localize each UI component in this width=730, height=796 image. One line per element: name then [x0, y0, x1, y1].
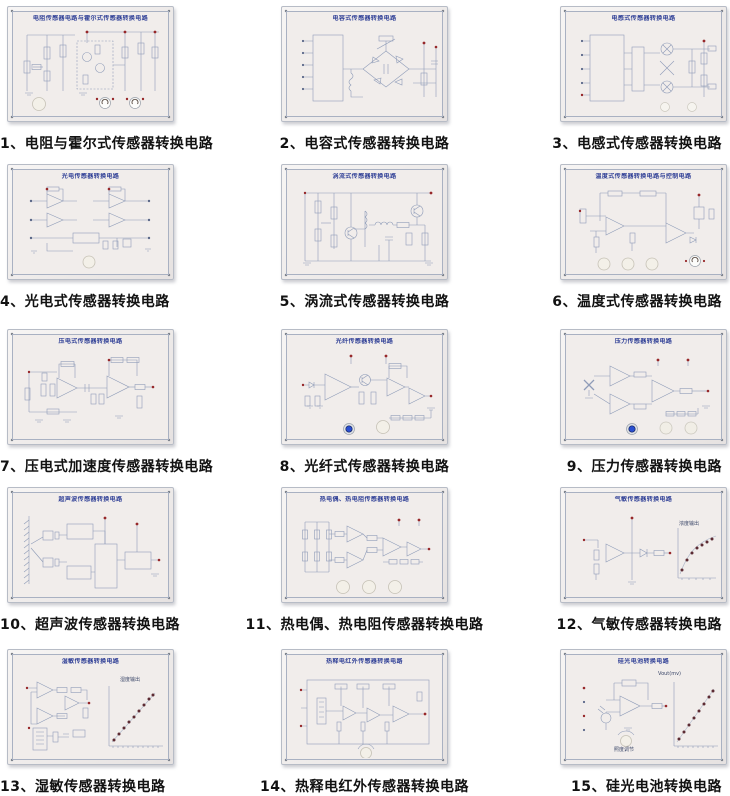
knob-icon [337, 581, 350, 594]
panel-title: 气敏传感器转换电路 [566, 496, 721, 503]
panel-cell: 热电偶、热电阻传感器转换电路 [243, 475, 486, 635]
circuit-schematic [290, 23, 442, 115]
board-face: 热释电红外传感器转换电路 [286, 654, 443, 760]
panel-cell: 温度式传感器转换电路与控制电路 [486, 155, 730, 315]
panel-title: 压电式传感器转换电路 [13, 338, 168, 345]
board-face: 电容式传感器转换电路 [286, 11, 443, 117]
indicator-icon [661, 103, 670, 112]
circuit-schematic [290, 346, 442, 438]
catalog-grid: 电阻传感器电路与霍尔式传感器转换电路 [0, 0, 730, 788]
circuit-schematic [569, 23, 721, 115]
knob-icon [389, 581, 402, 594]
board-face: 光纤传感器转换电路 [286, 334, 443, 440]
board-face: 温度式传感器转换电路与控制电路 [565, 169, 722, 275]
led-indicator-icon [629, 426, 635, 432]
panel-title: 硅光电池转换电路 [566, 658, 721, 665]
circuit-board-photo: 温度式传感器转换电路与控制电路 [560, 164, 727, 280]
circuit-schematic [16, 23, 168, 115]
panel-cell: 电阻传感器电路与霍尔式传感器转换电路 [0, 0, 243, 155]
panel-cell: 热释电红外传感器转换电路 [243, 635, 486, 788]
circuit-board-photo: 超声波传感器转换电路 [7, 487, 174, 603]
board-face: 气敏传感器转换电路 浓度输出 [565, 492, 722, 598]
panel-caption: 8、光纤式传感器转换电路 [280, 456, 450, 476]
board-face: 光电传感器转换电路 [12, 169, 169, 275]
circuit-schematic [569, 666, 721, 758]
circuit-board-photo: 光电传感器转换电路 [7, 164, 174, 280]
led-indicator-icon [346, 426, 352, 432]
panel-caption: 4、光电式传感器转换电路 [0, 291, 170, 311]
knob-icon [83, 256, 95, 268]
panel-title: 温度式传感器转换电路与控制电路 [566, 173, 721, 180]
circuit-schematic [16, 504, 168, 596]
board-face: 压电式传感器转换电路 [12, 334, 169, 440]
board-face: 压力传感器转换电路 [565, 334, 722, 440]
knob-icon [621, 736, 632, 747]
panel-cell: 光纤传感器转换电路 [243, 315, 486, 475]
panel-title: 电阻传感器电路与霍尔式传感器转换电路 [13, 15, 168, 22]
indicator-icon [688, 103, 697, 112]
panel-caption: 6、温度式传感器转换电路 [552, 291, 722, 311]
circuit-schematic [16, 346, 168, 438]
panel-caption: 11、热电偶、热电阻传感器转换电路 [246, 614, 484, 634]
circuit-board-photo: 电感式传感器转换电路 [560, 6, 727, 122]
panel-caption: 3、电感式传感器转换电路 [552, 133, 722, 153]
board-face: 电阻传感器电路与霍尔式传感器转换电路 [12, 11, 169, 117]
panel-title: 光纤传感器转换电路 [287, 338, 442, 345]
board-face: 电感式传感器转换电路 [565, 11, 722, 117]
panel-cell: 气敏传感器转换电路 浓度输出 [486, 475, 730, 635]
knob-icon [361, 748, 372, 759]
board-face: 热电偶、热电阻传感器转换电路 [286, 492, 443, 598]
board-face: 涡流式传感器转换电路 [286, 169, 443, 275]
panel-caption: 10、超声波传感器转换电路 [0, 614, 180, 634]
panel-title: 光电传感器转换电路 [13, 173, 168, 180]
panel-cell: 电容式传感器转换电路 [243, 0, 486, 155]
knob-icon [646, 258, 658, 270]
panel-caption: 2、电容式传感器转换电路 [280, 133, 450, 153]
circuit-board-photo: 电阻传感器电路与霍尔式传感器转换电路 [7, 6, 174, 122]
panel-title: 超声波传感器转换电路 [13, 496, 168, 503]
panel-title: 电容式传感器转换电路 [287, 15, 442, 22]
circuit-board-photo: 热释电红外传感器转换电路 [281, 649, 448, 765]
panel-title: 电感式传感器转换电路 [566, 15, 721, 22]
panel-caption: 13、湿敏传感器转换电路 [0, 776, 165, 796]
panel-caption: 1、电阻与霍尔式传感器转换电路 [0, 133, 213, 153]
knob-icon [377, 421, 390, 434]
circuit-schematic [16, 181, 168, 273]
panel-cell: 电感式传感器转换电路 [486, 0, 730, 155]
panel-cell: 压力传感器转换电路 [486, 315, 730, 475]
panel-title: 涡流式传感器转换电路 [287, 173, 442, 180]
circuit-schematic [290, 181, 442, 273]
circuit-board-photo: 涡流式传感器转换电路 [281, 164, 448, 280]
circuit-schematic [569, 504, 721, 596]
panel-title: 湿敏传感器转换电路 [13, 658, 168, 665]
panel-caption: 14、热释电红外传感器转换电路 [260, 776, 469, 796]
circuit-board-photo: 电容式传感器转换电路 [281, 6, 448, 122]
circuit-board-photo: 气敏传感器转换电路 浓度输出 [560, 487, 727, 603]
knob-icon [33, 98, 46, 111]
circuit-board-photo: 热电偶、热电阻传感器转换电路 [281, 487, 448, 603]
panel-title: 热释电红外传感器转换电路 [287, 658, 442, 665]
circuit-schematic [569, 181, 721, 273]
panel-cell: 涡流式传感器转换电路 [243, 155, 486, 315]
circuit-board-photo: 光纤传感器转换电路 [281, 329, 448, 445]
panel-cell: 硅光电池转换电路 Vout(mv) 照度调节 [486, 635, 730, 788]
knob-icon [685, 422, 697, 434]
knob-icon [363, 581, 376, 594]
circuit-board-photo: 压电式传感器转换电路 [7, 329, 174, 445]
knob-icon [660, 422, 672, 434]
panel-cell: 超声波传感器转换电路 [0, 475, 243, 635]
circuit-schematic [290, 504, 442, 596]
panel-caption: 7、压电式加速度传感器转换电路 [0, 456, 213, 476]
panel-caption: 15、硅光电池转换电路 [571, 776, 722, 796]
board-face: 超声波传感器转换电路 [12, 492, 169, 598]
panel-caption: 9、压力传感器转换电路 [567, 456, 722, 476]
circuit-schematic [290, 666, 442, 758]
panel-cell: 压电式传感器转换电路 [0, 315, 243, 475]
circuit-board-photo: 压力传感器转换电路 [560, 329, 727, 445]
circuit-board-photo: 硅光电池转换电路 Vout(mv) 照度调节 [560, 649, 727, 765]
circuit-schematic [569, 346, 721, 438]
knob-icon [598, 258, 610, 270]
board-face: 硅光电池转换电路 Vout(mv) 照度调节 [565, 654, 722, 760]
circuit-schematic [16, 666, 168, 758]
board-face: 湿敏传感器转换电路 湿度输出 [12, 654, 169, 760]
panel-cell: 光电传感器转换电路 [0, 155, 243, 315]
panel-caption: 5、涡流式传感器转换电路 [280, 291, 450, 311]
knob-icon [622, 258, 634, 270]
panel-caption: 12、气敏传感器转换电路 [557, 614, 722, 634]
circuit-board-photo: 湿敏传感器转换电路 湿度输出 [7, 649, 174, 765]
panel-title: 压力传感器转换电路 [566, 338, 721, 345]
panel-title: 热电偶、热电阻传感器转换电路 [287, 496, 442, 503]
panel-cell: 湿敏传感器转换电路 湿度输出 [0, 635, 243, 788]
